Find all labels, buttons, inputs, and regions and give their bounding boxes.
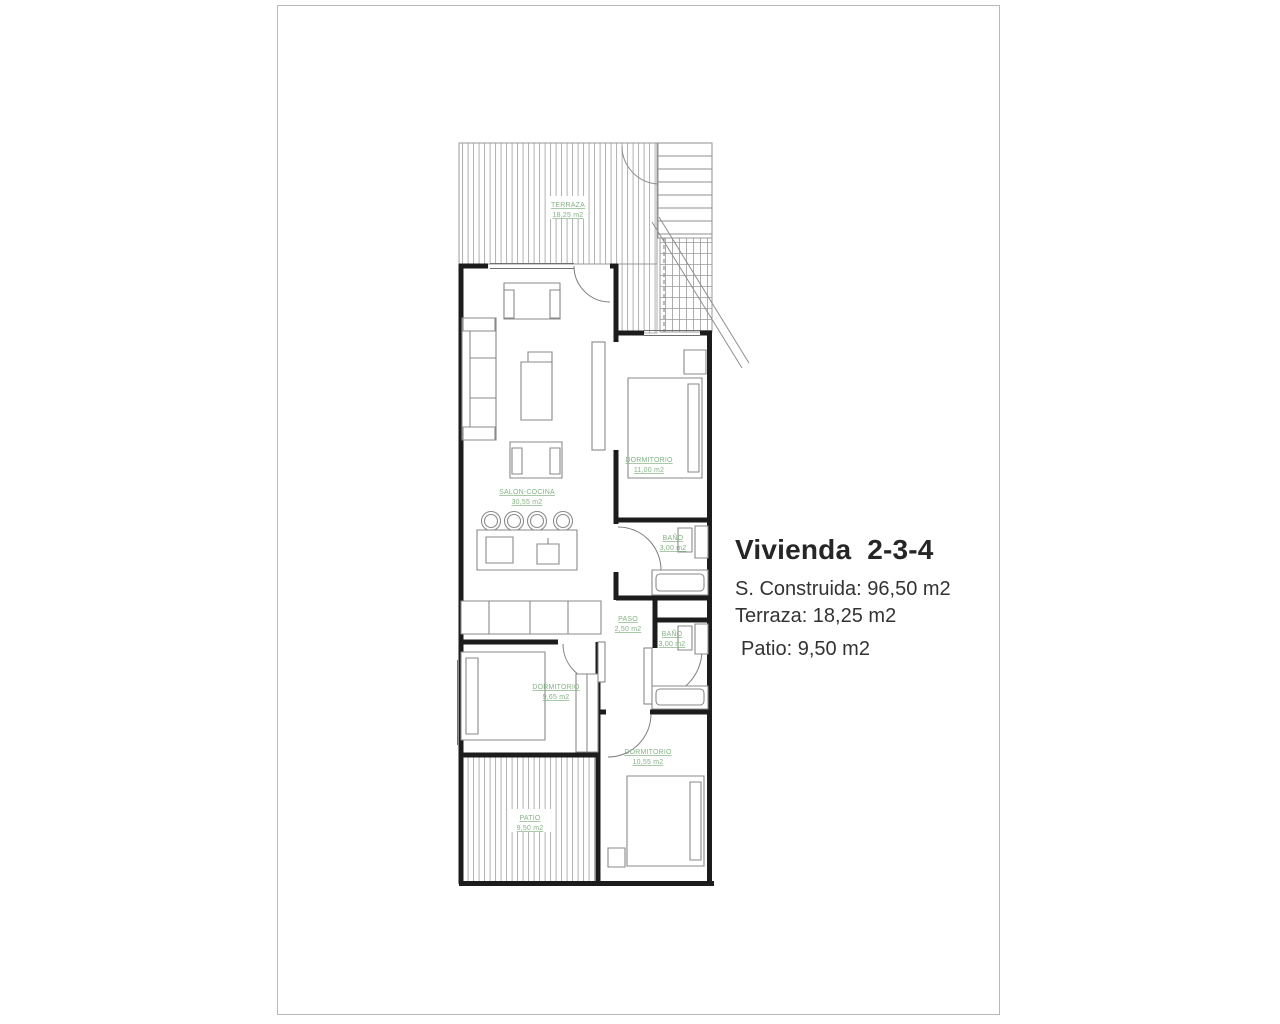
kitchen-counter — [461, 601, 601, 634]
room-label-dormitorio-1: DORMITORIO — [625, 457, 673, 464]
room-label-salon: SALON-COCINA — [499, 489, 555, 496]
armchair-top — [504, 283, 560, 319]
room-area-bano-2: 3,00 m2 — [659, 641, 686, 648]
floorplan-drawing: TERRAZA 18,25 m2 SALON-COCINA 30,55 m2 D… — [440, 120, 770, 910]
room-label-dormitorio-3: DORMITORIO — [624, 749, 672, 756]
room-label-paso: PASO — [618, 616, 638, 623]
armchair-bottom — [510, 442, 562, 478]
room-label-dormitorio-2: DORMITORIO — [532, 684, 580, 691]
room-label-patio: PATIO — [520, 815, 541, 822]
room-area-bano-1: 3,00 m2 — [660, 545, 687, 552]
built-area-line: S. Construida: 96,50 m2 — [735, 576, 951, 603]
sofa — [462, 318, 496, 440]
bath1-door-arc — [618, 527, 661, 570]
room-area-paso: 2,50 m2 — [615, 626, 642, 633]
salon-door-arc — [574, 266, 610, 302]
room-area-terraza: 18,25 m2 — [553, 212, 584, 219]
room-area-patio: 9,50 m2 — [517, 825, 544, 832]
patio-area-line: Patio: 9,50 m2 — [741, 636, 951, 663]
unit-title: Vivienda 2-3-4 — [735, 534, 951, 566]
room-label-bano-2: BAÑO — [662, 629, 683, 638]
bed-2 — [461, 652, 598, 752]
sliding-door-leaf — [592, 342, 605, 450]
room-area-dormitorio-2: 9,65 m2 — [543, 694, 570, 701]
room-area-dormitorio-1: 11,00 m2 — [634, 467, 664, 474]
coffee-table — [521, 352, 552, 420]
room-area-dormitorio-3: 10,55 m2 — [633, 759, 664, 766]
bath2-door-leaf — [644, 648, 652, 704]
bar-stools — [482, 512, 573, 531]
terrace-area-line: Terraza: 18,25 m2 — [735, 603, 951, 630]
room-label-bano-1: BAÑO — [663, 533, 684, 542]
bedroom2-door-leaf — [598, 642, 605, 682]
kitchen-island — [477, 530, 577, 570]
info-panel: Vivienda 2-3-4 S. Construida: 96,50 m2 T… — [735, 534, 951, 663]
room-label-terraza: TERRAZA — [551, 202, 585, 209]
room-area-salon: 30,55 m2 — [512, 499, 543, 506]
bed-3 — [608, 776, 704, 867]
